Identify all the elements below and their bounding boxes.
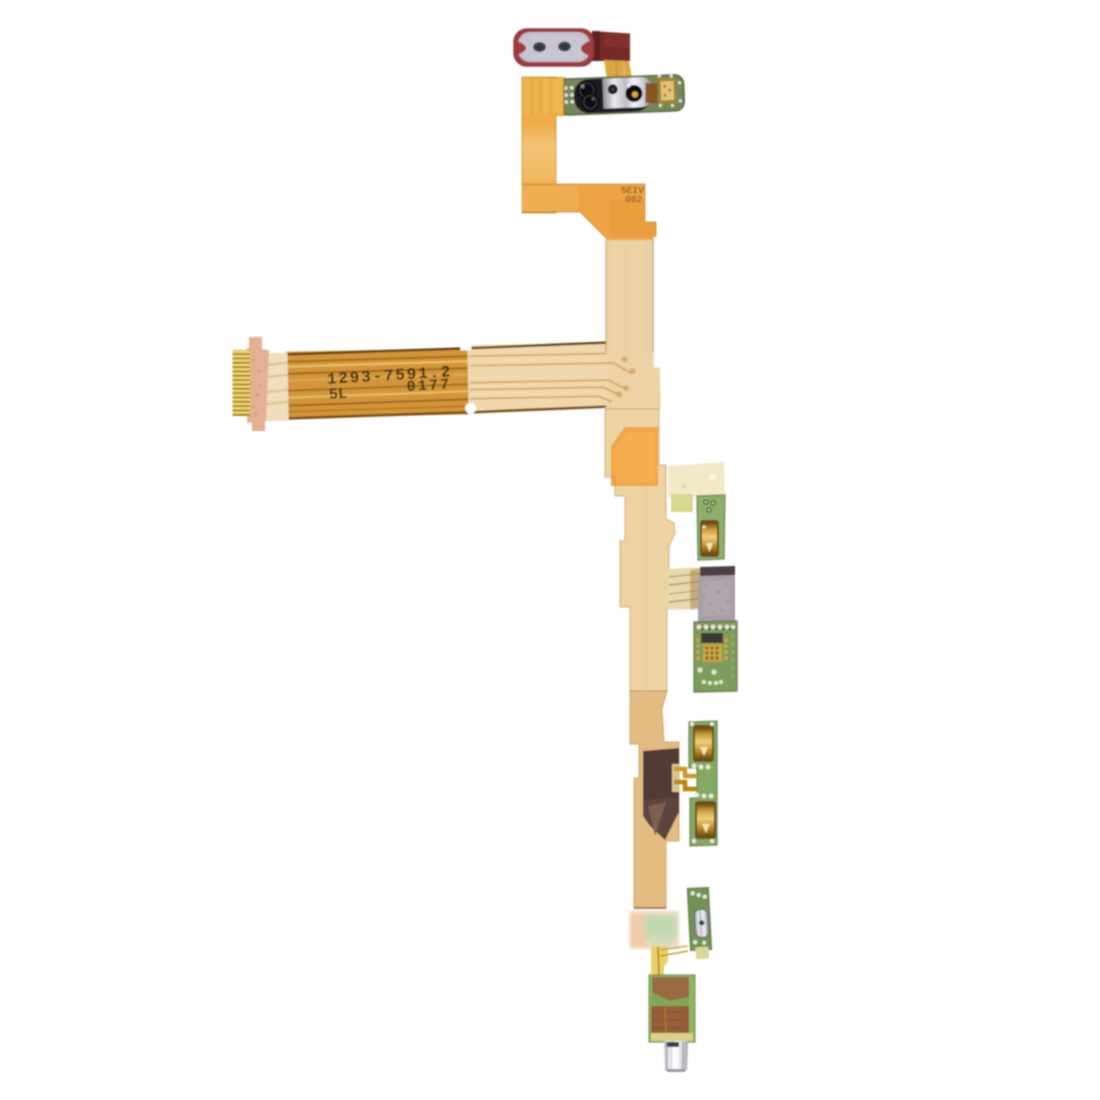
svg-text:5L: 5L	[328, 386, 347, 404]
svg-text:002: 002	[625, 194, 642, 205]
svg-text:0177: 0177	[406, 376, 452, 396]
